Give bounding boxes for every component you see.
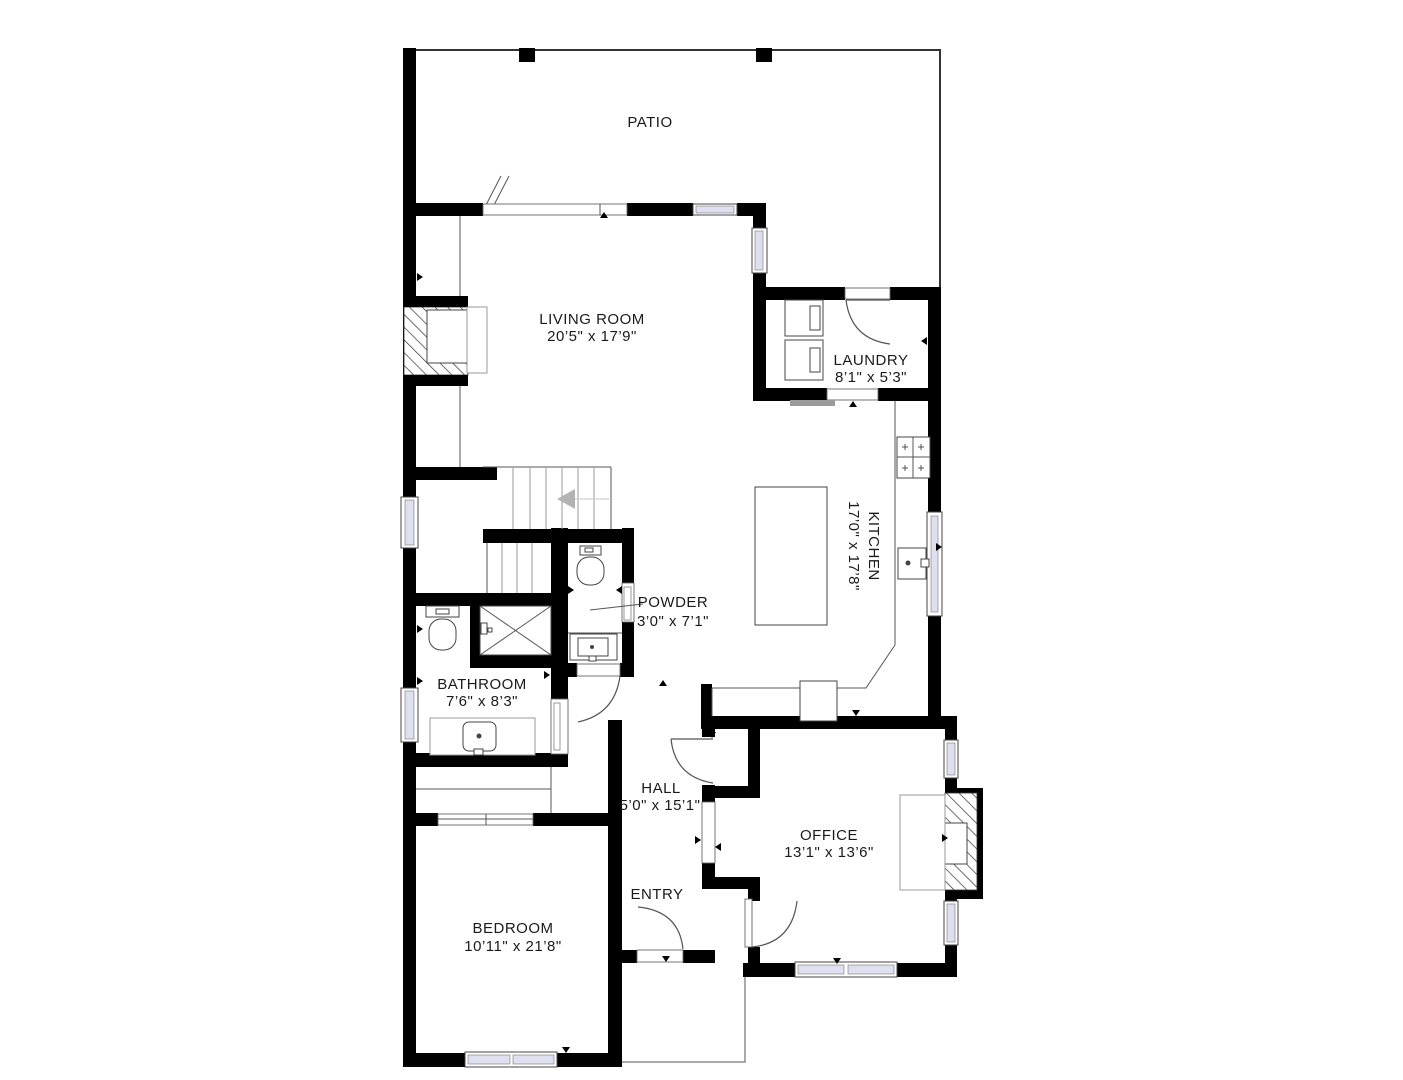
- marker-icon: [715, 843, 721, 851]
- patio-label: PATIO: [627, 114, 672, 131]
- powder-door: [578, 676, 620, 722]
- front-door-leaf: [637, 950, 683, 962]
- stairs-direction-arrow-icon: [557, 489, 575, 509]
- laundry-label: LAUNDRY: [834, 352, 909, 369]
- patio-post: [756, 48, 772, 62]
- label-leader-line: [590, 604, 643, 610]
- wall-segment: [683, 950, 715, 963]
- wall-segment: [702, 786, 760, 798]
- kitchen-sink-icon: [898, 548, 929, 579]
- wall-segment: [608, 720, 622, 1067]
- entry-closet-door: [752, 901, 797, 947]
- powder-pocket-door: [622, 583, 634, 622]
- bathroom-vanity-icon: [430, 718, 535, 755]
- wall-segment: [702, 877, 760, 889]
- bedroom-label: BEDROOM: [472, 920, 553, 937]
- wall-segment: [897, 963, 957, 977]
- window-icon: [465, 1052, 557, 1067]
- living-fireplace-icon: [404, 296, 487, 386]
- window-icon: [693, 204, 737, 215]
- dishwasher-icon: [800, 681, 837, 721]
- wall-segment: [403, 742, 416, 1067]
- marker-icon: [417, 677, 423, 685]
- wall-segment: [743, 963, 795, 977]
- window-icon: [401, 497, 418, 548]
- hall-dims: 5’0" x 15’1": [620, 797, 701, 814]
- floor-plan-drawing: PATIO LIVING ROOM 20’5" x 17’9" LAUNDRY …: [0, 0, 1403, 1080]
- bedroom-dims: 10’11" x 21’8": [464, 938, 561, 955]
- porch-outline: [622, 977, 745, 1062]
- wall-segment: [878, 388, 941, 401]
- wall-segment: [753, 300, 766, 400]
- washer-icon: [785, 300, 823, 336]
- closet-door-leaf: [745, 899, 752, 947]
- living-room-dims: 20’5" x 17’9": [547, 328, 637, 345]
- powder-door-leaf: [577, 664, 620, 676]
- marker-icon: [659, 680, 667, 686]
- wall-segment: [622, 528, 634, 583]
- wall-segment: [748, 947, 760, 965]
- wall-segment: [753, 203, 766, 228]
- wall-segment: [945, 716, 957, 740]
- hall-cased-opening: [702, 802, 715, 863]
- laundry-dims: 8’1" x 5’3": [835, 369, 907, 386]
- window-icon: [795, 962, 897, 977]
- bedroom-closet-slider: [438, 814, 533, 825]
- front-door: [638, 907, 683, 949]
- office-fireplace-icon: [900, 788, 983, 899]
- window-icon: [401, 688, 418, 742]
- bathroom-label: BATHROOM: [437, 676, 527, 693]
- wall-segment: [470, 655, 568, 668]
- living-room-label: LIVING ROOM: [539, 311, 645, 328]
- hall-label: HALL: [641, 780, 681, 797]
- office-builtin: [900, 795, 945, 890]
- window-icon: [944, 740, 958, 778]
- dryer-icon: [785, 340, 823, 380]
- marker-icon: [568, 586, 574, 594]
- marker-icon: [562, 1047, 570, 1053]
- office-label: OFFICE: [800, 827, 858, 844]
- marker-icon: [695, 836, 701, 844]
- wall-segment: [403, 593, 568, 606]
- bathroom-dims: 7’6" x 8’3": [446, 693, 518, 710]
- bathroom-toilet-icon: [426, 606, 459, 650]
- laundry-door-opening: [845, 288, 890, 299]
- wall-segment: [753, 388, 827, 401]
- break-line-icon: [486, 176, 509, 205]
- wall-segment: [403, 548, 416, 688]
- powder-toilet-icon: [577, 546, 604, 585]
- wall-segment: [403, 1053, 465, 1067]
- wall-segment: [620, 663, 634, 677]
- marker-icon: [417, 625, 423, 633]
- wall-segment: [416, 467, 497, 480]
- kitchen-island: [755, 487, 827, 625]
- marker-icon: [544, 671, 550, 679]
- wall-segment: [403, 813, 438, 826]
- wall-segment: [608, 950, 637, 963]
- wall-segment: [928, 615, 941, 718]
- marker-icon: [852, 710, 860, 716]
- entry-label: ENTRY: [630, 886, 683, 903]
- wall-segment: [627, 203, 693, 216]
- marker-icon: [849, 401, 857, 407]
- stove-icon: [897, 437, 930, 478]
- office-dims: 13’1" x 13’6": [784, 844, 874, 861]
- powder-sink-icon: [570, 634, 617, 661]
- shower-icon: [480, 606, 551, 655]
- patio-boundary: [403, 48, 941, 288]
- window-icon: [752, 228, 767, 273]
- marker-icon: [616, 586, 622, 594]
- sliding-patio-door: [483, 204, 627, 215]
- powder-dims: 3’0" x 7’1": [637, 613, 709, 630]
- hall-closet-door: [671, 739, 713, 783]
- marker-icon: [921, 337, 927, 345]
- wall-segment: [701, 684, 712, 729]
- wall-segment: [753, 287, 845, 300]
- powder-label: POWDER: [638, 594, 709, 611]
- bathroom-pocket-door: [551, 699, 568, 754]
- patio-post: [519, 48, 535, 62]
- wall-segment: [551, 677, 568, 699]
- marker-icon: [417, 273, 423, 281]
- wall-segment: [403, 203, 483, 216]
- wall-segment: [557, 1053, 622, 1067]
- kitchen-dims: 17’0" x 17’8": [845, 501, 862, 591]
- window-icon: [944, 901, 958, 945]
- laundry-door: [846, 300, 890, 344]
- wall-segment: [403, 48, 416, 497]
- floor-plan-page: PATIO LIVING ROOM 20’5" x 17’9" LAUNDRY …: [0, 0, 1403, 1080]
- kitchen-label: KITCHEN: [865, 511, 882, 580]
